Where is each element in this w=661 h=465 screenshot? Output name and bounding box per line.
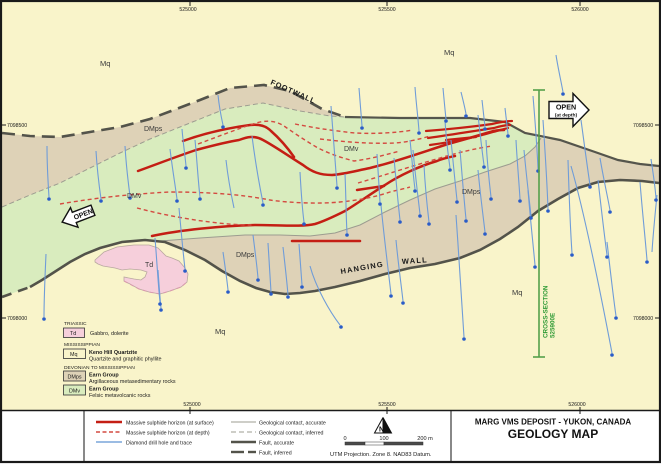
svg-text:Td: Td: [70, 331, 76, 337]
svg-text:Fault, inferred: Fault, inferred: [259, 451, 292, 457]
svg-text:525000: 525000: [183, 402, 200, 408]
svg-text:Keno Hill Quartzite: Keno Hill Quartzite: [89, 350, 137, 356]
svg-text:Diamond drill hole and trace: Diamond drill hole and trace: [126, 441, 192, 447]
svg-text:Massive sulphide horizon (at d: Massive sulphide horizon (at depth): [126, 431, 210, 437]
svg-text:Mq: Mq: [100, 59, 110, 68]
svg-text:(at depth): (at depth): [555, 113, 578, 119]
svg-text:DEVONIAN TO MISSISSIPPIAN: DEVONIAN TO MISSISSIPPIAN: [64, 365, 135, 371]
svg-text:Mq: Mq: [512, 288, 522, 297]
svg-text:OPEN: OPEN: [556, 103, 576, 112]
svg-text:MISSISSIPPIAN: MISSISSIPPIAN: [64, 342, 100, 348]
svg-text:7098000: 7098000: [633, 316, 653, 322]
svg-text:Felsic metavolcanic rocks: Felsic metavolcanic rocks: [89, 393, 151, 399]
svg-text:DMv: DMv: [127, 193, 142, 200]
svg-text:525500: 525500: [378, 402, 395, 408]
svg-text:Geological contact, inferred: Geological contact, inferred: [259, 431, 324, 437]
svg-text:DMps: DMps: [68, 375, 82, 381]
svg-text:Geological contact, accurate: Geological contact, accurate: [259, 421, 326, 427]
svg-text:0: 0: [343, 436, 346, 442]
svg-text:Mq: Mq: [70, 352, 78, 358]
svg-text:UTM Projection. Zone 8. NAD83: UTM Projection. Zone 8. NAD83 Datum.: [330, 452, 432, 458]
svg-text:Mq: Mq: [444, 48, 454, 57]
svg-text:200 m: 200 m: [417, 436, 433, 442]
svg-text:DMps: DMps: [236, 252, 255, 259]
svg-text:DMps: DMps: [462, 189, 481, 196]
svg-text:525900E: 525900E: [550, 313, 557, 338]
svg-text:Massive sulphide horizon (at s: Massive sulphide horizon (at surface): [126, 421, 214, 427]
svg-text:MARG VMS DEPOSIT - YUKON, CANA: MARG VMS DEPOSIT - YUKON, CANADA: [475, 418, 632, 427]
svg-text:DMps: DMps: [144, 126, 163, 133]
svg-text:N: N: [379, 427, 384, 434]
svg-text:7098500: 7098500: [633, 123, 653, 129]
svg-text:Quartzite and graphitic phylli: Quartzite and graphitic phyllite: [89, 357, 162, 363]
svg-text:WALL: WALL: [402, 255, 429, 266]
svg-text:Gabbro, dolerite: Gabbro, dolerite: [90, 331, 129, 337]
svg-text:TRIASSIC: TRIASSIC: [64, 321, 87, 327]
svg-text:525000: 525000: [179, 7, 196, 13]
svg-text:GEOLOGY MAP: GEOLOGY MAP: [508, 427, 598, 441]
svg-text:526000: 526000: [568, 402, 585, 408]
svg-text:Argillaceous metasedimentary r: Argillaceous metasedimentary rocks: [89, 379, 176, 385]
svg-text:Fault, accurate: Fault, accurate: [259, 441, 294, 447]
svg-text:Td: Td: [145, 262, 153, 269]
svg-text:100: 100: [379, 436, 388, 442]
svg-text:7098000: 7098000: [7, 316, 27, 322]
svg-text:DMv: DMv: [344, 146, 359, 153]
svg-text:Mq: Mq: [215, 327, 225, 336]
svg-text:7098500: 7098500: [7, 123, 27, 129]
svg-text:526000: 526000: [571, 7, 588, 13]
svg-text:DMv: DMv: [69, 389, 80, 395]
svg-text:CROSS-SECTION: CROSS-SECTION: [543, 285, 550, 338]
svg-text:Earn Group: Earn Group: [89, 373, 119, 379]
svg-text:Earn Group: Earn Group: [89, 387, 119, 393]
svg-text:525500: 525500: [378, 7, 395, 13]
